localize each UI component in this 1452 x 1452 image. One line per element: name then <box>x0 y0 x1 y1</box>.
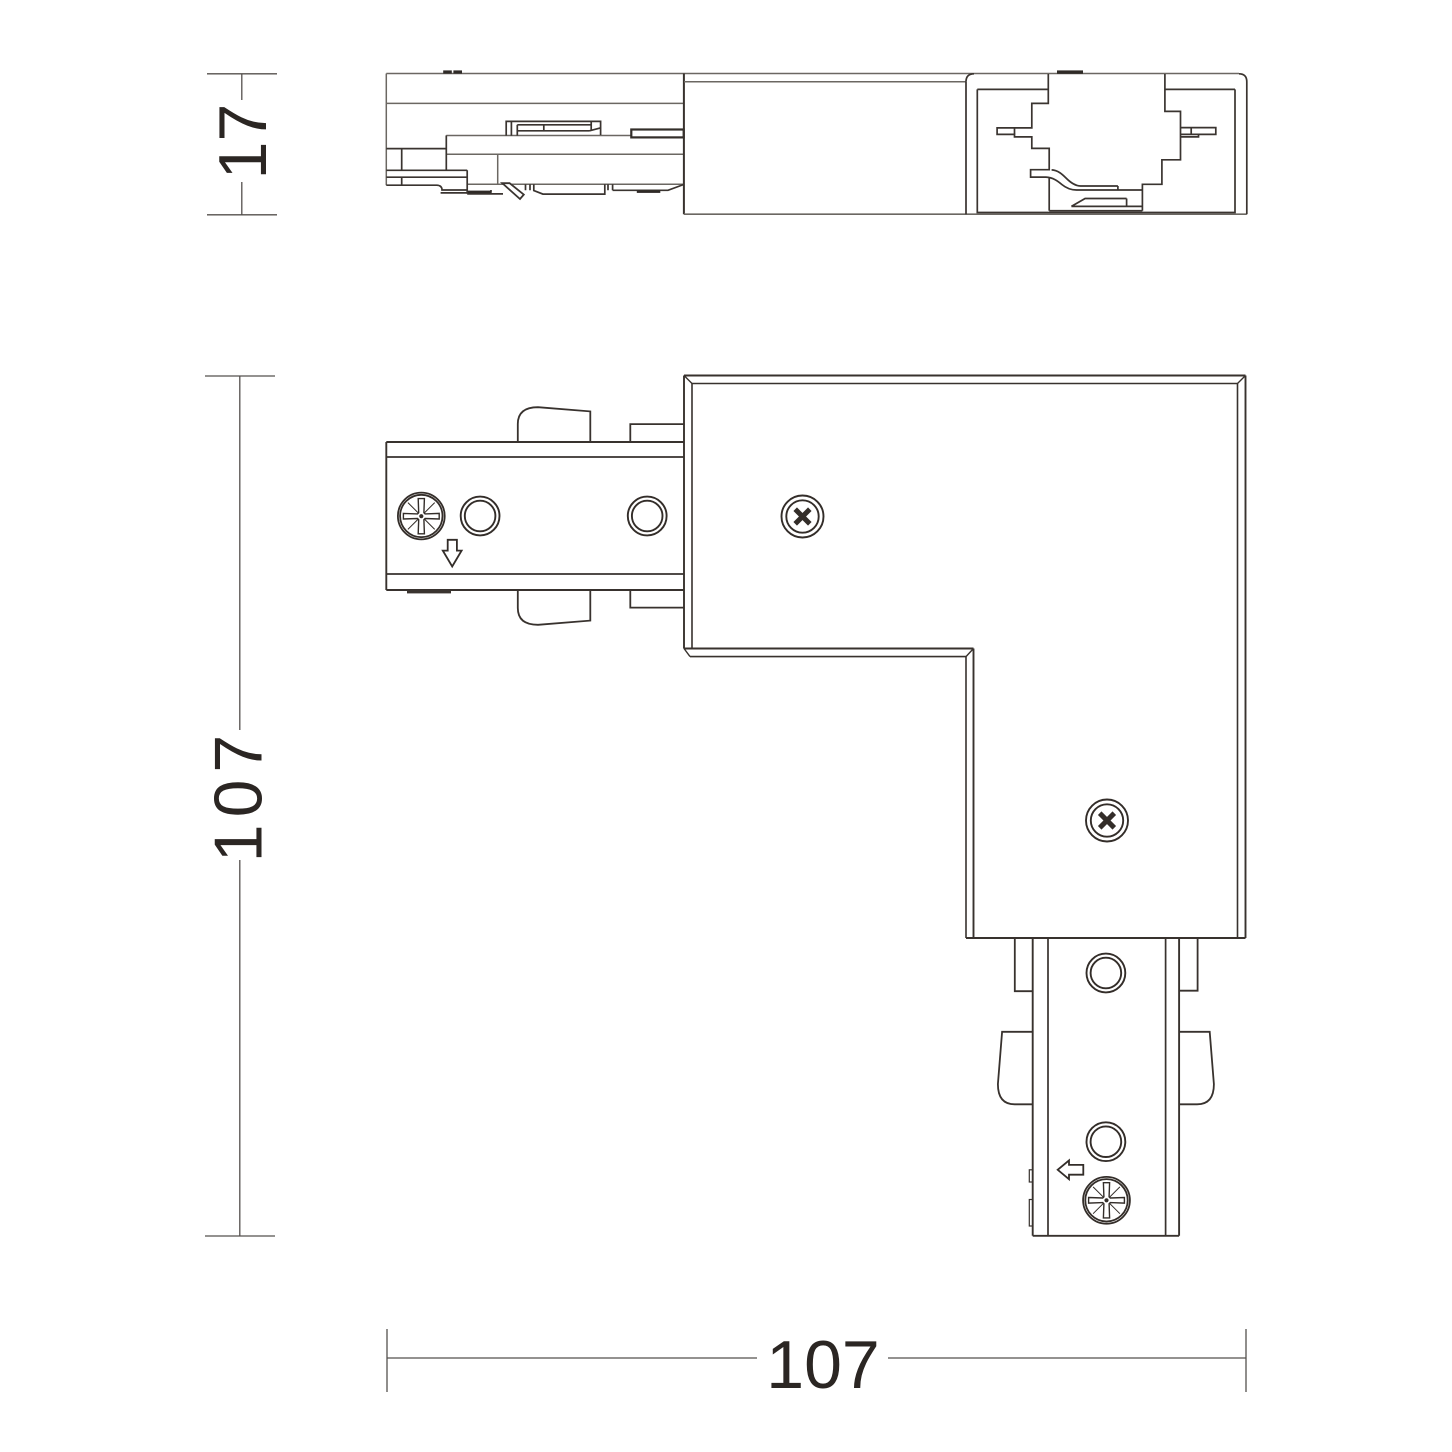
svg-text:107: 107 <box>201 728 277 862</box>
svg-text:107: 107 <box>766 1327 879 1403</box>
svg-text:17: 17 <box>205 104 281 180</box>
